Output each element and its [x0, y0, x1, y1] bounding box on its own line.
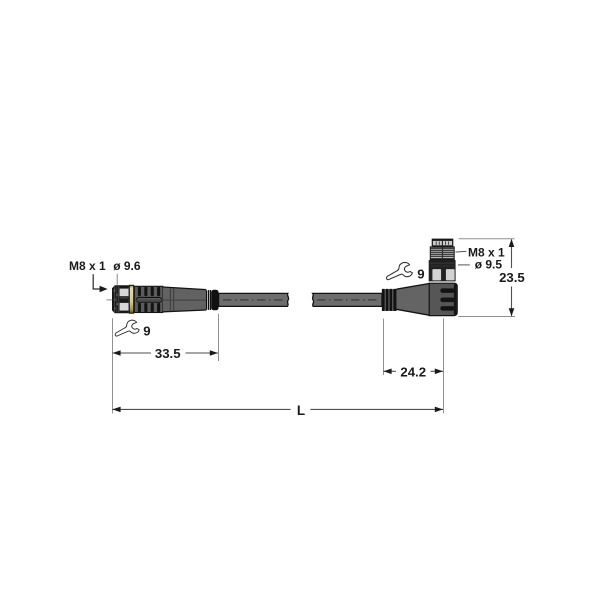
svg-text:9: 9 — [143, 323, 150, 338]
svg-text:ø 9.6: ø 9.6 — [113, 259, 141, 273]
svg-text:M8 x 1: M8 x 1 — [69, 259, 106, 273]
svg-text:9: 9 — [417, 267, 424, 282]
svg-text:L: L — [297, 403, 305, 418]
svg-text:24.2: 24.2 — [400, 365, 426, 380]
svg-text:33.5: 33.5 — [155, 346, 181, 361]
svg-text:23.5: 23.5 — [499, 270, 525, 285]
